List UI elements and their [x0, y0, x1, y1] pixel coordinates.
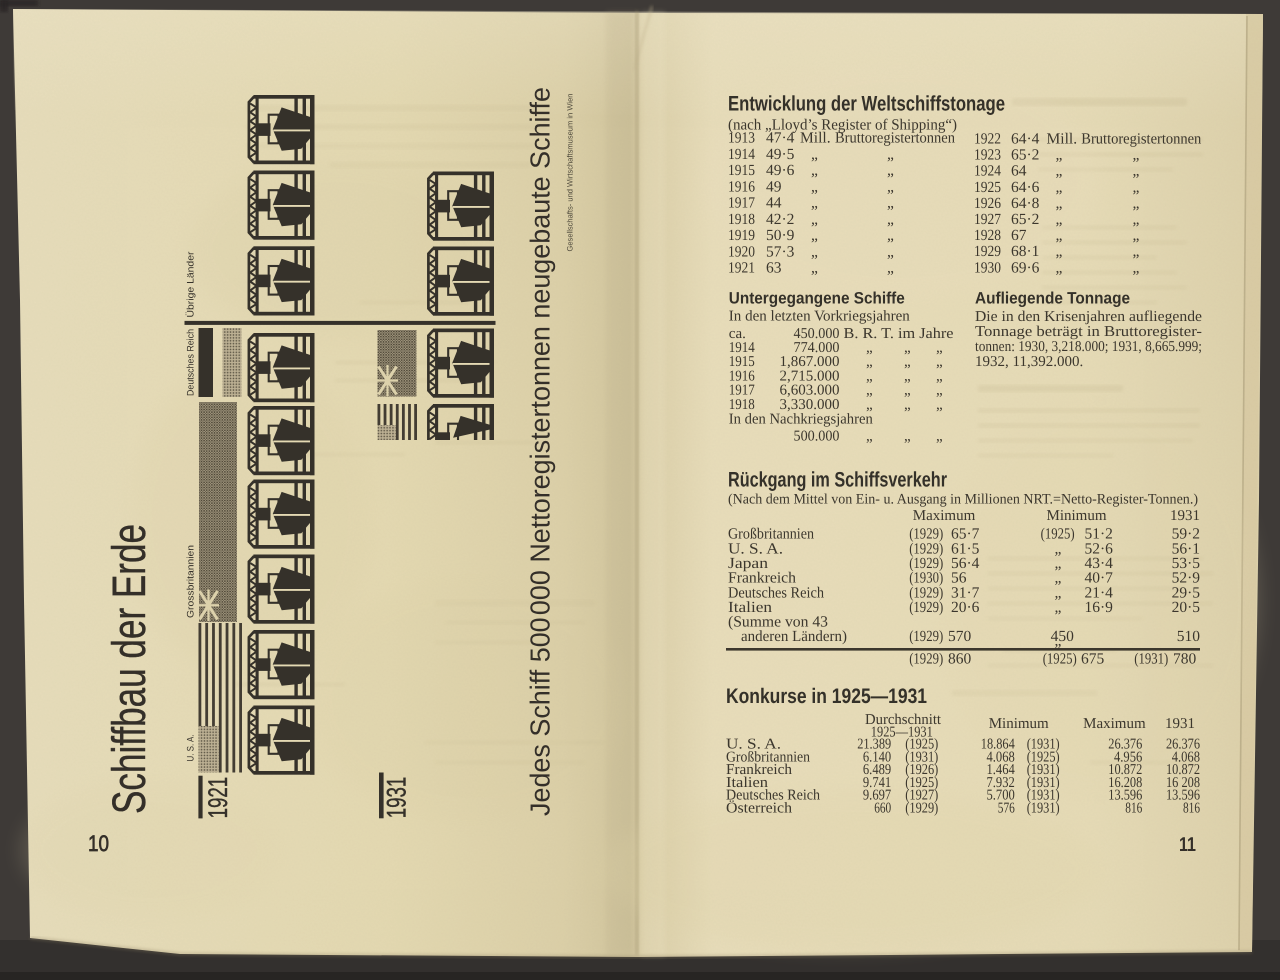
svg-text:„: „ — [1133, 195, 1140, 212]
svg-text:„: „ — [866, 397, 873, 413]
svg-text:1930: 1930 — [974, 259, 1001, 276]
svg-text:Untergegangene Schiffe: Untergegangene Schiffe — [729, 290, 905, 308]
svg-text:1917: 1917 — [728, 195, 755, 212]
svg-text:50·9: 50·9 — [766, 227, 795, 244]
svg-text:Bruttoregistertonnen: Bruttoregistertonnen — [1081, 131, 1201, 148]
svg-text:64·4: 64·4 — [1011, 131, 1040, 148]
svg-text:In den letzten Vorkriegsjahren: In den letzten Vorkriegsjahren — [729, 309, 910, 325]
svg-text:Bruttoregistertonnen: Bruttoregistertonnen — [835, 130, 955, 147]
svg-text:660: 660 — [874, 800, 891, 816]
svg-text:„: „ — [936, 428, 943, 444]
svg-text:„: „ — [936, 397, 943, 413]
svg-text:780: 780 — [1173, 651, 1197, 668]
svg-text:Grossbritannien: Grossbritannien — [186, 545, 197, 618]
svg-text:(1925): (1925) — [1043, 651, 1077, 668]
svg-text:„: „ — [1056, 163, 1063, 180]
svg-text:1916: 1916 — [728, 178, 755, 195]
svg-text:44: 44 — [766, 195, 782, 212]
svg-text:„: „ — [887, 243, 894, 260]
svg-text:68·1: 68·1 — [1011, 243, 1039, 260]
svg-text:1919: 1919 — [728, 227, 755, 244]
svg-text:„: „ — [1133, 163, 1140, 180]
svg-text:„: „ — [1133, 259, 1140, 276]
svg-text:Jedes Schiff 500 000 Nettoregi: Jedes Schiff 500 000 Nettoregistertonnen… — [525, 87, 556, 816]
svg-text:1922: 1922 — [974, 131, 1001, 148]
svg-text:„: „ — [811, 211, 818, 228]
svg-text:Mill.: Mill. — [800, 130, 831, 147]
svg-text:„: „ — [1056, 259, 1063, 276]
svg-text:570: 570 — [948, 628, 972, 645]
svg-text:Übrige Länder: Übrige Länder — [186, 252, 197, 318]
svg-text:1923: 1923 — [974, 147, 1001, 164]
svg-text:500.000: 500.000 — [794, 428, 840, 444]
svg-text:„: „ — [1056, 211, 1063, 228]
svg-text:65·2: 65·2 — [1011, 147, 1039, 164]
svg-text:anderen Ländern): anderen Ländern) — [741, 628, 847, 645]
svg-text:1924: 1924 — [974, 163, 1001, 180]
svg-text:1929: 1929 — [974, 243, 1001, 260]
svg-text:„: „ — [1133, 227, 1140, 244]
svg-text:1921: 1921 — [728, 260, 755, 277]
svg-text:Rückgang im Schiffsverkehr: Rückgang im Schiffsverkehr — [728, 469, 947, 492]
svg-text:1931: 1931 — [1170, 508, 1200, 524]
svg-text:(1931): (1931) — [1027, 800, 1060, 816]
svg-text:„: „ — [904, 428, 911, 444]
svg-text:816: 816 — [1183, 800, 1200, 816]
svg-text:1914: 1914 — [728, 146, 755, 163]
svg-text:1920: 1920 — [728, 243, 755, 260]
svg-text:Entwicklung der Weltschiffston: Entwicklung der Weltschiffstonage — [728, 93, 1005, 116]
svg-text:„: „ — [1133, 243, 1140, 260]
svg-text:42·2: 42·2 — [766, 211, 794, 228]
svg-text:Konkurse in 1925—1931: Konkurse in 1925—1931 — [726, 685, 927, 708]
svg-text:tonnen: 1930, 3,218.000; 1931,: tonnen: 1930, 3,218.000; 1931, 8,665.999… — [975, 339, 1202, 355]
svg-text:Minimum: Minimum — [989, 716, 1049, 732]
svg-text:„: „ — [866, 428, 873, 444]
svg-text:47·4: 47·4 — [766, 130, 795, 147]
svg-text:1918: 1918 — [728, 211, 755, 228]
svg-text:„: „ — [1133, 179, 1140, 196]
svg-text:„: „ — [1056, 243, 1063, 260]
svg-text:„: „ — [887, 162, 894, 179]
svg-text:Aufliegende Tonnage: Aufliegende Tonnage — [975, 290, 1130, 308]
svg-text:49: 49 — [766, 178, 782, 195]
svg-text:Die in den Krisenjahren auflie: Die in den Krisenjahren aufliegende — [975, 309, 1202, 325]
svg-text:63: 63 — [766, 260, 782, 277]
svg-text:20·6: 20·6 — [951, 599, 980, 616]
svg-text:64·6: 64·6 — [1011, 179, 1040, 196]
svg-text:„: „ — [811, 260, 818, 277]
svg-text:„: „ — [1056, 179, 1063, 196]
svg-text:Gesellschafts- und Wirtschafts: Gesellschafts- und Wirtschaftsmuseum in … — [566, 94, 575, 252]
svg-text:„: „ — [887, 195, 894, 212]
svg-text:„: „ — [887, 178, 894, 195]
svg-text:„: „ — [1056, 195, 1063, 212]
svg-text:(1931): (1931) — [1134, 651, 1168, 668]
svg-text:„: „ — [887, 146, 894, 163]
svg-text:Schiffbau der Erde: Schiffbau der Erde — [102, 524, 155, 814]
svg-text:(1929): (1929) — [905, 800, 938, 816]
svg-text:(1929): (1929) — [909, 599, 943, 616]
svg-text:„: „ — [1056, 227, 1063, 244]
svg-text:In den Nachkriegsjahren: In den Nachkriegsjahren — [729, 412, 873, 428]
svg-text:64·8: 64·8 — [1011, 195, 1040, 212]
svg-text:1925: 1925 — [974, 179, 1001, 196]
svg-text:1921: 1921 — [203, 777, 233, 819]
svg-text:„: „ — [811, 178, 818, 195]
svg-text:450: 450 — [1051, 628, 1075, 645]
svg-text:U. S. A.: U. S. A. — [186, 735, 197, 762]
svg-text:„: „ — [811, 227, 818, 244]
svg-text:Minimum: Minimum — [1046, 508, 1106, 524]
svg-text:69·6: 69·6 — [1011, 259, 1040, 276]
svg-text:Maximum: Maximum — [913, 508, 976, 524]
svg-text:Österreich: Österreich — [726, 799, 793, 816]
svg-text:67: 67 — [1011, 227, 1027, 244]
svg-text:Mill.: Mill. — [1047, 131, 1078, 148]
svg-text:1928: 1928 — [974, 227, 1001, 244]
svg-text:„: „ — [1056, 147, 1063, 164]
svg-text:1931: 1931 — [382, 777, 412, 819]
svg-text:510: 510 — [1177, 628, 1201, 645]
svg-text:57·3: 57·3 — [766, 243, 795, 260]
svg-text:„: „ — [811, 146, 818, 163]
svg-text:Tonnage beträgt in Bruttoregis: Tonnage beträgt in Bruttoregister- — [975, 324, 1202, 340]
svg-text:860: 860 — [948, 651, 972, 668]
svg-text:Maximum: Maximum — [1083, 716, 1146, 732]
svg-text:1913: 1913 — [728, 130, 755, 147]
svg-text:„: „ — [887, 227, 894, 244]
svg-text:1932, 11,392.000.: 1932, 11,392.000. — [975, 354, 1083, 370]
svg-text:49·6: 49·6 — [766, 162, 795, 179]
svg-text:675: 675 — [1081, 651, 1105, 668]
svg-text:1927: 1927 — [974, 211, 1001, 228]
svg-text:11: 11 — [1179, 834, 1196, 856]
svg-text:„: „ — [904, 397, 911, 413]
svg-text:(Nach dem Mittel von Ein- u. A: (Nach dem Mittel von Ein- u. Ausgang in … — [728, 492, 1198, 508]
svg-text:49·5: 49·5 — [766, 146, 795, 163]
svg-text:20·5: 20·5 — [1172, 599, 1201, 616]
svg-text:(1929): (1929) — [909, 628, 943, 645]
svg-text:Deutsches Reich: Deutsches Reich — [186, 329, 197, 396]
svg-text:„: „ — [1133, 211, 1140, 228]
svg-text:1926: 1926 — [974, 195, 1001, 212]
svg-text:16·9: 16·9 — [1085, 599, 1114, 616]
svg-text:„: „ — [811, 243, 818, 260]
svg-text:1918: 1918 — [729, 397, 755, 413]
svg-text:64: 64 — [1011, 163, 1027, 180]
svg-text:„: „ — [811, 162, 818, 179]
svg-text:816: 816 — [1125, 800, 1142, 816]
svg-text:1931: 1931 — [1165, 716, 1195, 732]
svg-text:(1929): (1929) — [909, 651, 943, 668]
svg-text:„: „ — [811, 195, 818, 212]
svg-text:„: „ — [1133, 147, 1140, 164]
svg-text:3,330.000: 3,330.000 — [780, 397, 840, 413]
svg-text:10: 10 — [88, 831, 109, 856]
svg-text:65·2: 65·2 — [1011, 211, 1039, 228]
svg-text:„: „ — [1055, 599, 1062, 616]
svg-text:„: „ — [887, 260, 894, 277]
svg-text:576: 576 — [998, 800, 1015, 816]
svg-text:1915: 1915 — [728, 162, 755, 179]
svg-text:„: „ — [887, 211, 894, 228]
